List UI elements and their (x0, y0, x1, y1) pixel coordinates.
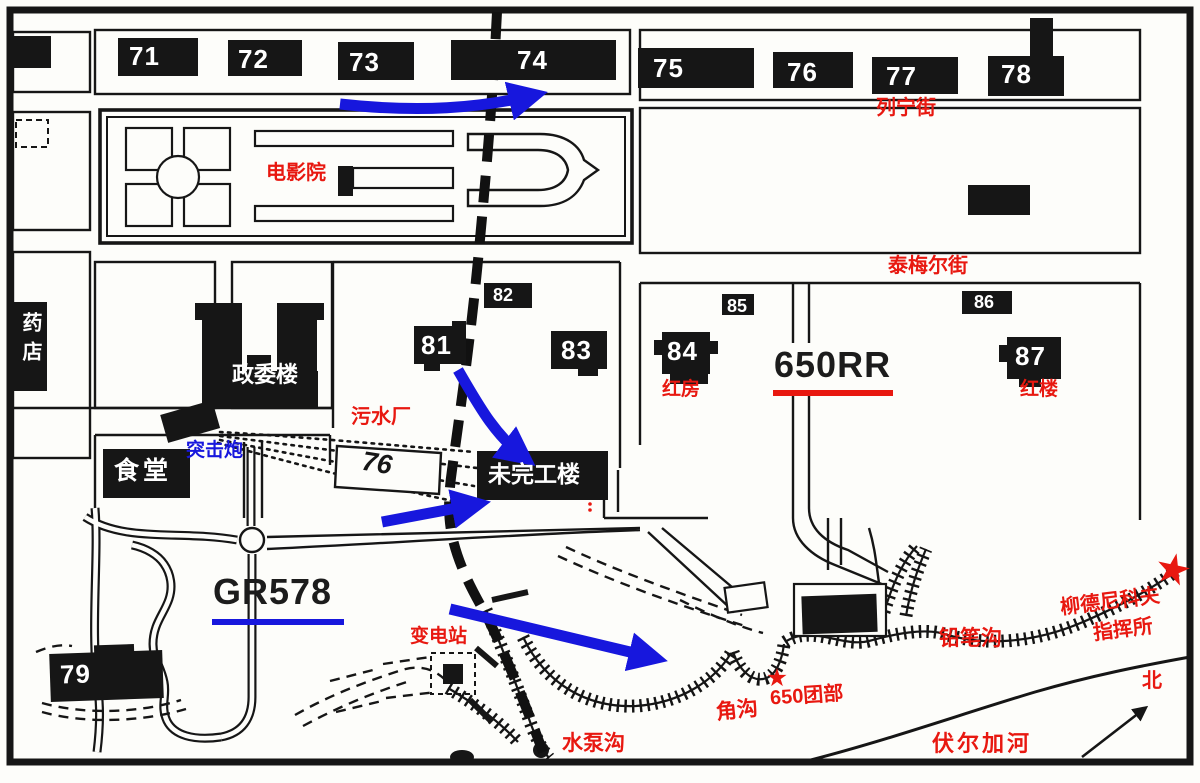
battle-map: 列宁街 泰梅尔街 电影院 药店 政委楼 突击炮 食堂 污水厂 76 未完工楼 红… (0, 0, 1200, 783)
building-74 (451, 40, 616, 80)
building-71 (118, 38, 198, 76)
volga-shoreline (795, 657, 1190, 764)
building-85 (722, 294, 754, 315)
building-81 (414, 321, 466, 371)
building-76-top (773, 52, 853, 88)
road-junction (240, 528, 264, 552)
assault-gun-mark (160, 400, 220, 443)
building-75 (638, 48, 754, 88)
building-84 (654, 332, 718, 384)
attack-arrows (340, 95, 655, 658)
building-77 (872, 57, 958, 94)
building-unlabeled (968, 185, 1030, 215)
gullies (448, 546, 1176, 764)
map-artwork (0, 0, 1200, 783)
building-87 (999, 337, 1061, 387)
ruin-outline (16, 120, 48, 147)
north-arrow (1082, 709, 1144, 757)
building-pharmacy (14, 302, 47, 391)
attack-arrow-mid (458, 370, 525, 458)
building-83 (551, 331, 607, 376)
building-canteen (103, 449, 190, 498)
attack-arrow-small (382, 504, 478, 522)
building-commissar (195, 303, 324, 409)
attack-arrow-top (340, 95, 535, 109)
building-72 (228, 40, 302, 76)
building-unfinished (477, 451, 608, 500)
building-76-mid (335, 446, 441, 494)
building-79 (49, 643, 164, 702)
building-82 (484, 283, 532, 308)
cinema-park (100, 110, 632, 243)
pencil-gully-hatch (884, 546, 917, 612)
cinema-marker (338, 166, 353, 196)
building-86 (962, 291, 1012, 314)
building-73 (338, 42, 414, 80)
